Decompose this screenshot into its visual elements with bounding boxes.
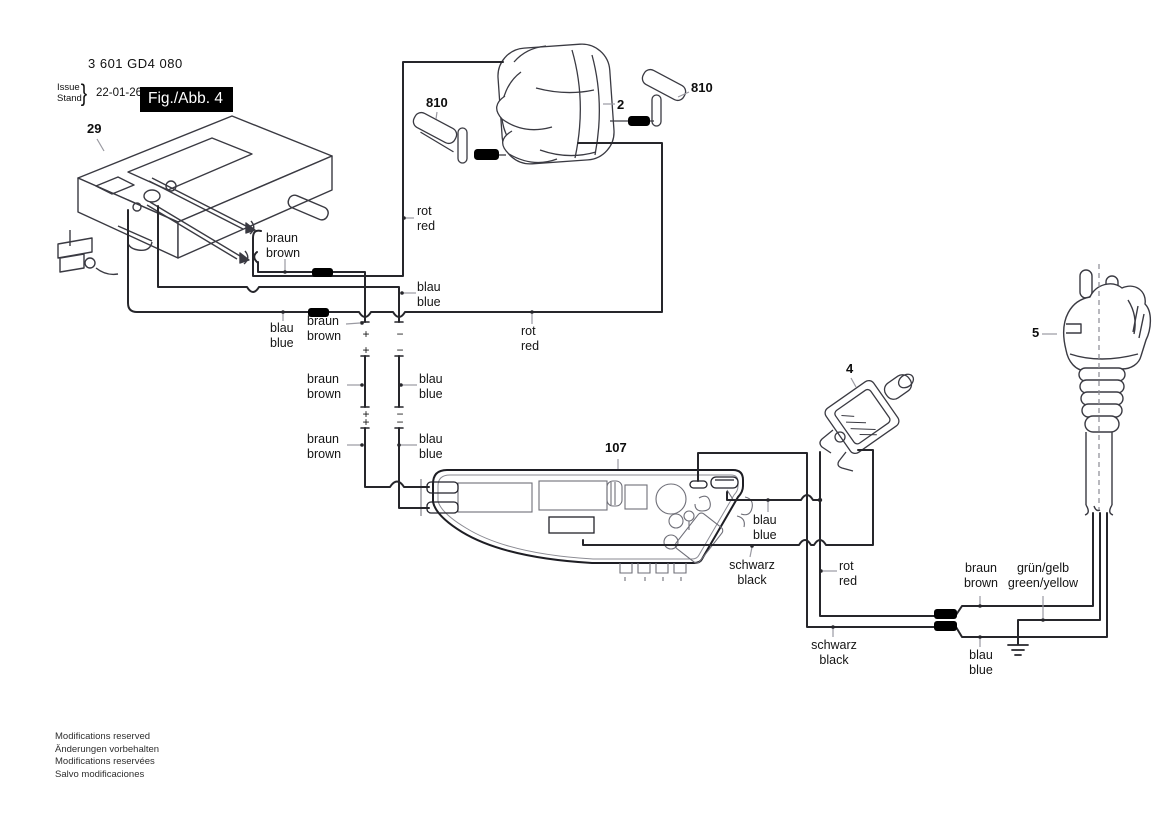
wire-label-blue-6: blaublue xyxy=(962,648,1000,678)
wire-red-suppressor xyxy=(820,452,934,616)
callout-switch: 29 xyxy=(87,121,101,136)
blob-brown-upper xyxy=(312,268,333,277)
wire-label-blue-3: blaublue xyxy=(419,372,443,402)
part-number-header: 3 601 GD4 080 xyxy=(88,56,183,71)
wire-label-blue-2: blaublue xyxy=(270,321,294,351)
callout-brush-right: 810 xyxy=(691,80,713,95)
callout-brush-left: 810 xyxy=(426,95,448,110)
issue-date: 22-01-26 xyxy=(96,87,142,99)
polarity-minus-4: − xyxy=(396,415,403,429)
blob-cord-lower xyxy=(934,621,957,631)
footer-line-es: Salvo modificaciones xyxy=(55,769,159,782)
suppressor-4-art xyxy=(820,371,916,471)
blob-cord-upper xyxy=(934,609,957,619)
polarity-minus-2: − xyxy=(396,343,403,357)
ground-symbol xyxy=(1008,645,1028,655)
diagram-canvas xyxy=(0,0,1169,826)
wire-label-blue-1: blaublue xyxy=(417,280,441,310)
footer-line-en: Modifications reserved xyxy=(55,731,159,744)
callout-field-coil: 2 xyxy=(617,97,624,112)
module-107-art xyxy=(421,470,752,581)
footer-line-de: Änderungen vorbehalten xyxy=(55,744,159,757)
issue-label: Issue xyxy=(57,82,82,93)
blob-brush-left xyxy=(474,149,499,160)
stand-label: Stand xyxy=(57,93,82,104)
polarity-plus-2: + xyxy=(362,343,369,357)
polarity-plus-1: + xyxy=(362,327,369,341)
callout-suppressor: 4 xyxy=(846,361,853,376)
wiring-diagram-page: 3 601 GD4 080 Issue Stand } 22-01-26 Fig… xyxy=(0,0,1169,826)
figure-label-badge: Fig./Abb. 4 xyxy=(140,87,233,112)
polarity-minus-1: − xyxy=(396,327,403,341)
issue-stand-label: Issue Stand xyxy=(57,82,82,104)
footer-notes: Modifications reserved Änderungen vorbeh… xyxy=(55,731,159,781)
wire-label-blue-4: blaublue xyxy=(419,432,443,462)
plug-5-art xyxy=(1064,264,1151,515)
callout-module: 107 xyxy=(605,440,627,455)
brace-glyph: } xyxy=(81,80,87,108)
footer-line-fr: Modifications reservées xyxy=(55,756,159,769)
callout-plug: 5 xyxy=(1032,325,1039,340)
polarity-plus-4: + xyxy=(362,415,369,429)
wire-label-black-2: schwarzblack xyxy=(804,638,864,668)
wire-label-red-3: rotred xyxy=(839,559,857,589)
wire-label-greenyellow: grün/gelbgreen/yellow xyxy=(1002,561,1084,591)
field-coil-2-art xyxy=(496,42,616,166)
wire-label-brown-5: braunbrown xyxy=(958,561,1004,591)
wire-label-brown-4: braunbrown xyxy=(307,432,341,462)
blob-brush-right xyxy=(628,116,650,126)
wire-label-blue-5: blaublue xyxy=(753,513,777,543)
wire-label-red-1: rotred xyxy=(417,204,435,234)
wire-label-red-2: rotred xyxy=(521,324,539,354)
wire-label-brown-2: braunbrown xyxy=(307,314,341,344)
wire-label-brown-1: braunbrown xyxy=(266,231,300,261)
wire-label-black-1: schwarzblack xyxy=(722,558,782,588)
wire-label-brown-3: braunbrown xyxy=(307,372,341,402)
